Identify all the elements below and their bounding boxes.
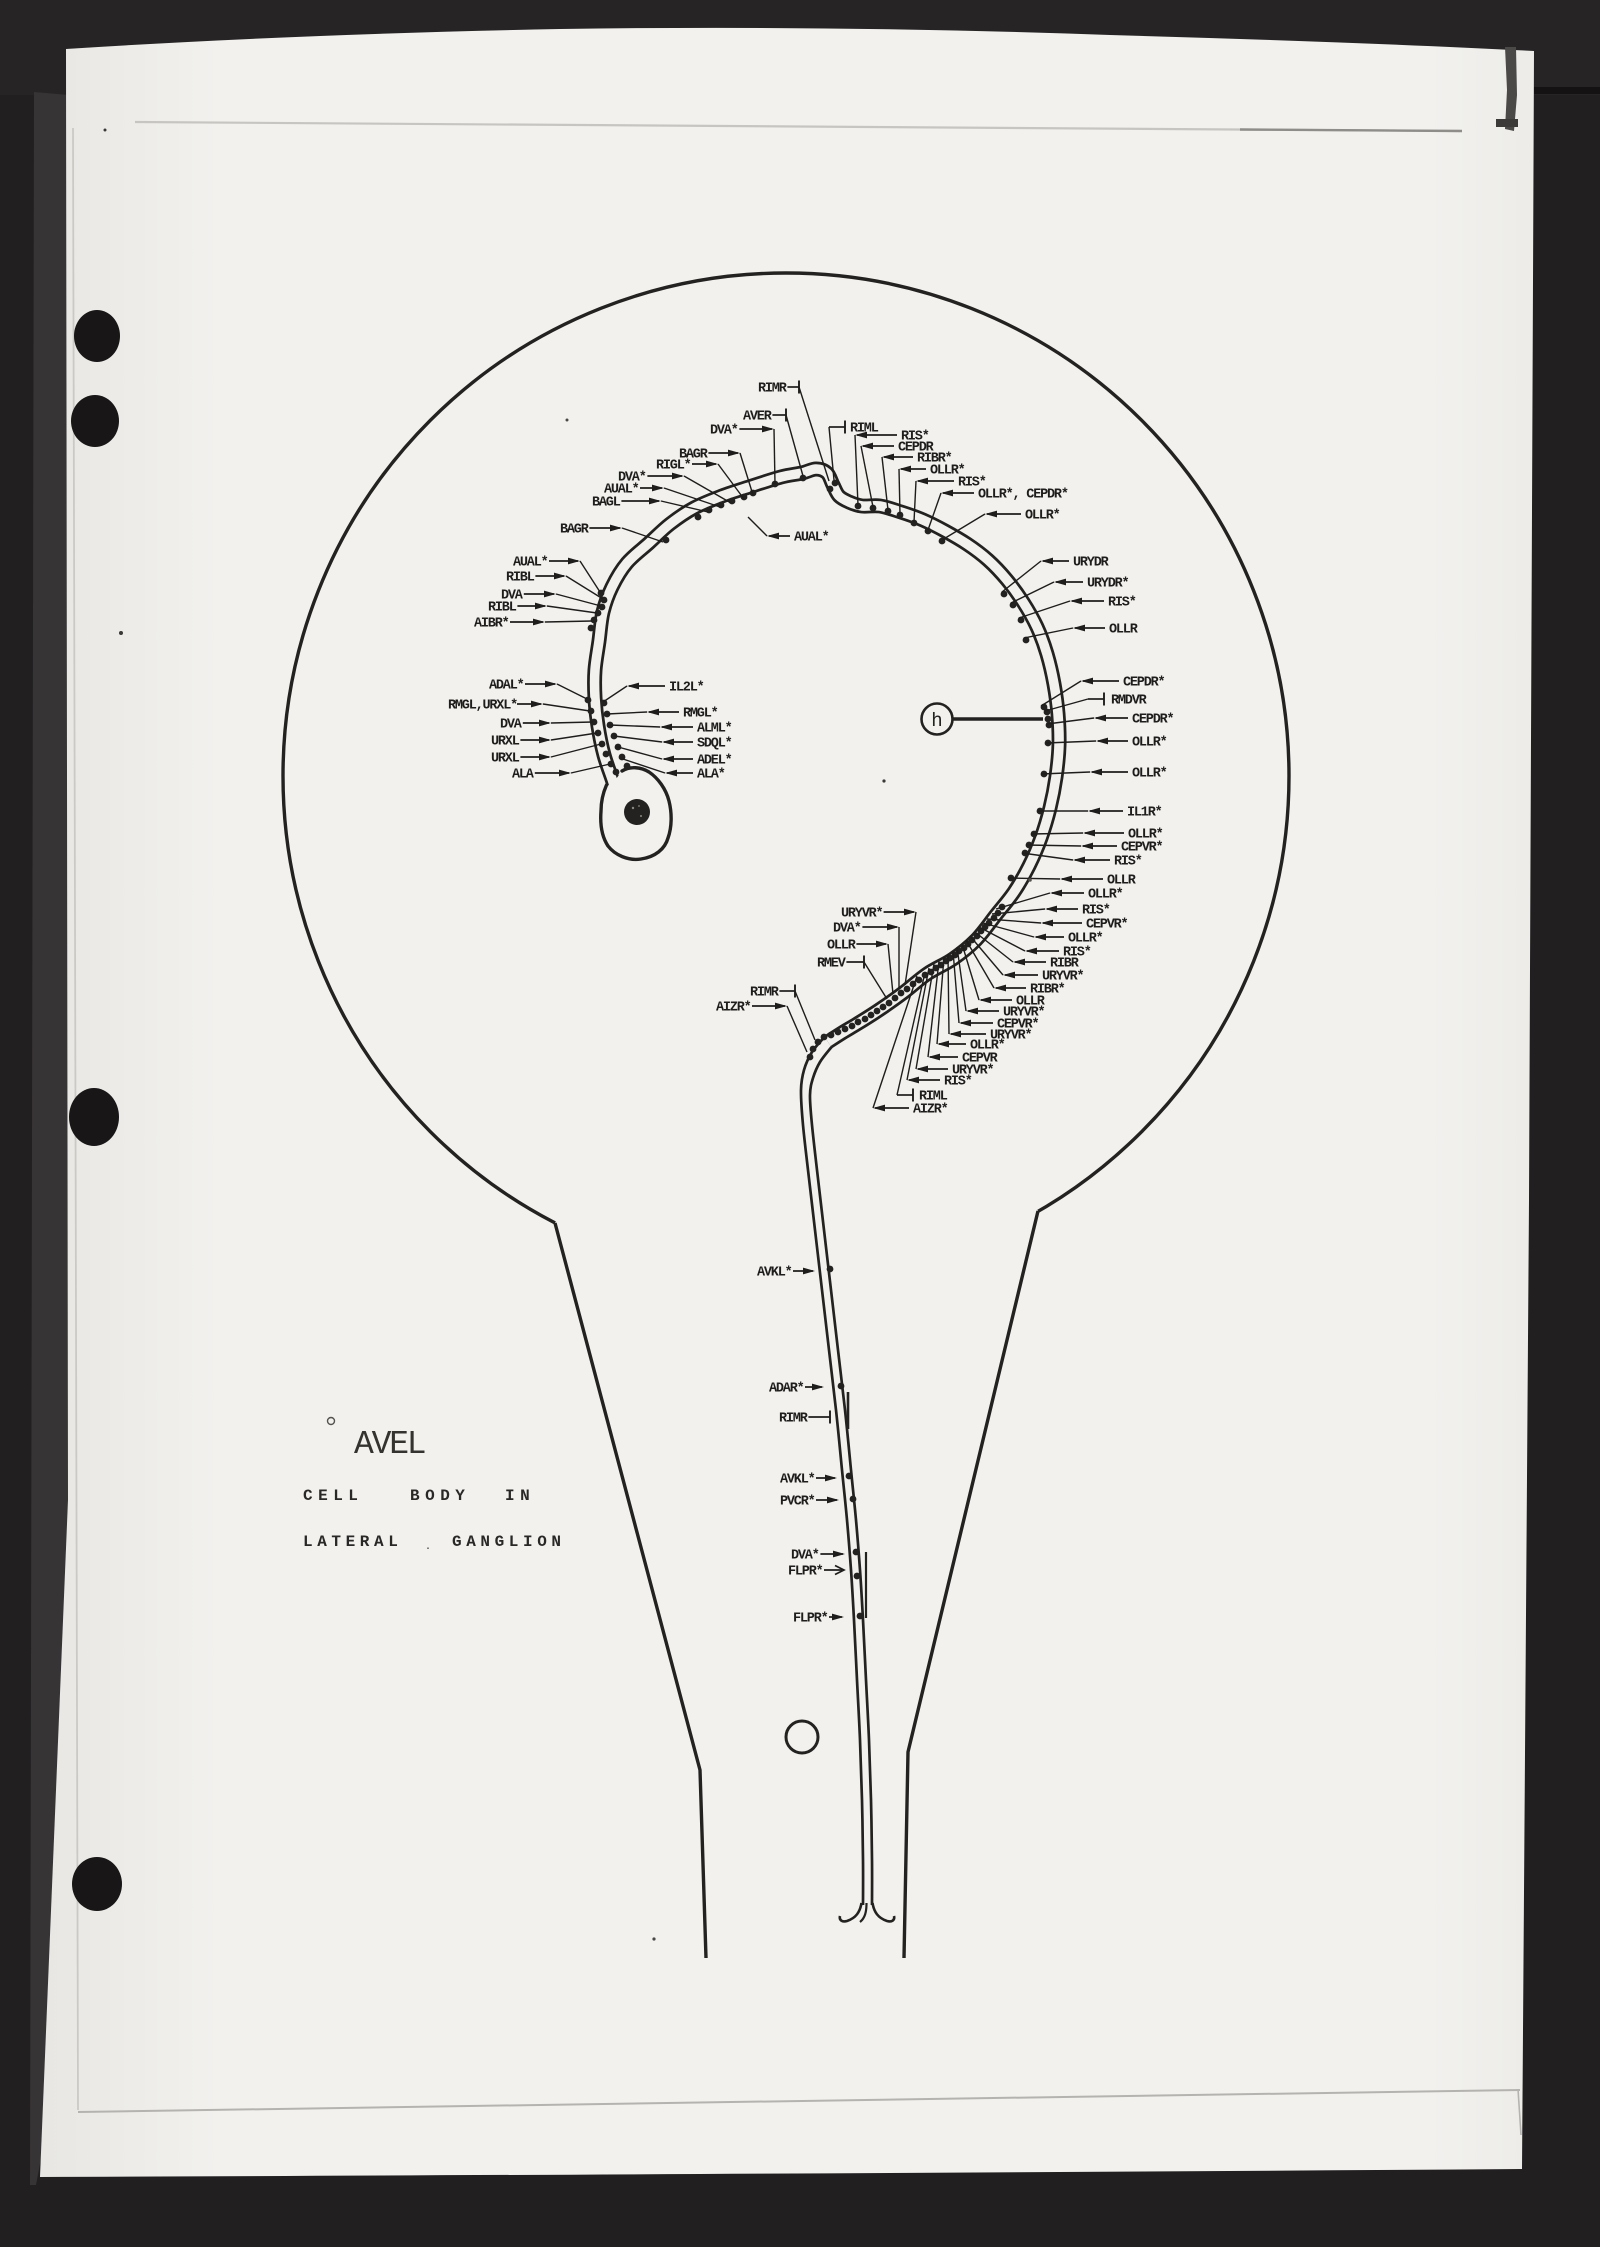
svg-text:OLLR*: OLLR* bbox=[1025, 509, 1060, 524]
svg-text:ADEL*: ADEL* bbox=[697, 754, 732, 769]
svg-text:GANGLION: GANGLION bbox=[452, 1533, 566, 1551]
svg-text:SDQL*: SDQL* bbox=[697, 737, 732, 752]
svg-text:ADAL*: ADAL* bbox=[489, 679, 524, 694]
svg-text:RMGL*: RMGL* bbox=[683, 707, 718, 722]
svg-text:AVEL: AVEL bbox=[354, 1426, 425, 1463]
svg-text:OLLR*: OLLR* bbox=[1068, 932, 1103, 947]
svg-text:AVKL*: AVKL* bbox=[780, 1473, 815, 1488]
svg-text:.: . bbox=[425, 1542, 431, 1553]
svg-text:URYDR: URYDR bbox=[1073, 556, 1110, 571]
svg-text:URXL: URXL bbox=[491, 735, 520, 750]
svg-text:ALML*: ALML* bbox=[697, 722, 732, 737]
svg-text:RMGL,URXL*: RMGL,URXL* bbox=[448, 699, 517, 714]
svg-text:DVA: DVA bbox=[500, 718, 523, 733]
svg-text:DVA*: DVA* bbox=[833, 922, 861, 937]
svg-text:RIBL: RIBL bbox=[488, 601, 517, 616]
svg-text:OLLR: OLLR bbox=[827, 939, 857, 954]
svg-text:URXL: URXL bbox=[491, 752, 520, 767]
svg-text:RMDVR: RMDVR bbox=[1111, 694, 1148, 709]
svg-text:RIS*: RIS* bbox=[1108, 596, 1136, 611]
svg-text:OLLR: OLLR bbox=[1107, 874, 1137, 889]
svg-text:OLLR*: OLLR* bbox=[1088, 888, 1123, 903]
svg-text:PVCR*: PVCR* bbox=[780, 1495, 815, 1510]
svg-text:RIMR: RIMR bbox=[750, 986, 780, 1001]
svg-text:URYVR*: URYVR* bbox=[841, 907, 883, 922]
svg-text:BAGL: BAGL bbox=[592, 496, 621, 511]
svg-text:RIS*: RIS* bbox=[1082, 904, 1110, 919]
svg-text:RIS*: RIS* bbox=[944, 1075, 972, 1090]
svg-text:RIGL*: RIGL* bbox=[656, 459, 691, 474]
svg-text:AIBR*: AIBR* bbox=[474, 617, 509, 632]
svg-text:AIZR*: AIZR* bbox=[716, 1001, 751, 1016]
svg-text:BODY: BODY bbox=[410, 1487, 470, 1505]
svg-text:FLPR*: FLPR* bbox=[788, 1565, 823, 1580]
svg-text:LATERAL: LATERAL bbox=[303, 1533, 402, 1551]
svg-text:IL1R*: IL1R* bbox=[1127, 806, 1162, 821]
svg-text:h: h bbox=[931, 710, 942, 732]
svg-text:OLLR*, CEPDR*: OLLR*, CEPDR* bbox=[978, 488, 1068, 503]
svg-text:RIBL: RIBL bbox=[506, 571, 535, 586]
svg-text:RIMR: RIMR bbox=[779, 1412, 809, 1427]
svg-text:DVA*: DVA* bbox=[710, 424, 738, 439]
svg-text:IN: IN bbox=[505, 1487, 535, 1505]
svg-text:ALA*: ALA* bbox=[697, 768, 725, 783]
svg-text:AIZR*: AIZR* bbox=[913, 1103, 948, 1118]
svg-text:RIMR: RIMR bbox=[758, 382, 788, 397]
svg-text:CEPVR*: CEPVR* bbox=[1121, 841, 1163, 856]
svg-text:CEPDR*: CEPDR* bbox=[1132, 713, 1174, 728]
svg-text:CELL: CELL bbox=[303, 1487, 363, 1505]
svg-text:BAGR: BAGR bbox=[560, 523, 590, 538]
svg-text:ADAR*: ADAR* bbox=[769, 1382, 804, 1397]
svg-text:RMEV: RMEV bbox=[817, 957, 847, 972]
svg-text:FLPR*: FLPR* bbox=[793, 1612, 828, 1627]
svg-text:AVER: AVER bbox=[743, 410, 773, 425]
svg-text:AVKL*: AVKL* bbox=[757, 1266, 792, 1281]
svg-text:URYDR*: URYDR* bbox=[1087, 577, 1129, 592]
svg-text:OLLR*: OLLR* bbox=[1132, 767, 1167, 782]
svg-text:IL2L*: IL2L* bbox=[669, 681, 704, 696]
svg-text:OLLR*: OLLR* bbox=[1132, 736, 1167, 751]
svg-text:DVA*: DVA* bbox=[791, 1549, 819, 1564]
svg-text:ALA: ALA bbox=[512, 768, 535, 783]
svg-text:AUAL*: AUAL* bbox=[794, 531, 829, 546]
svg-text:RIS*: RIS* bbox=[1114, 855, 1142, 870]
svg-text:OLLR: OLLR bbox=[1109, 623, 1139, 638]
svg-text:AUAL*: AUAL* bbox=[513, 556, 548, 571]
svg-text:CEPVR*: CEPVR* bbox=[1086, 918, 1128, 933]
svg-text:CEPDR*: CEPDR* bbox=[1123, 676, 1165, 691]
